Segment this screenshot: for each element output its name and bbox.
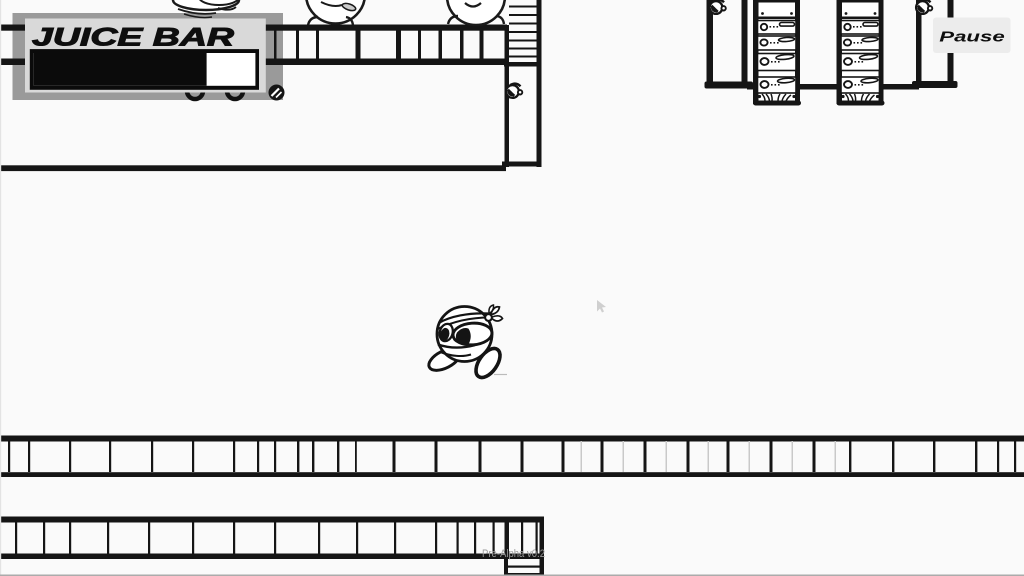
svg-text:Pre-Alpha v0.2: Pre-Alpha v0.2 <box>482 548 545 560</box>
svg-text:Pause: Pause <box>939 29 1005 45</box>
svg-text:JUICE BAR: JUICE BAR <box>32 24 234 52</box>
